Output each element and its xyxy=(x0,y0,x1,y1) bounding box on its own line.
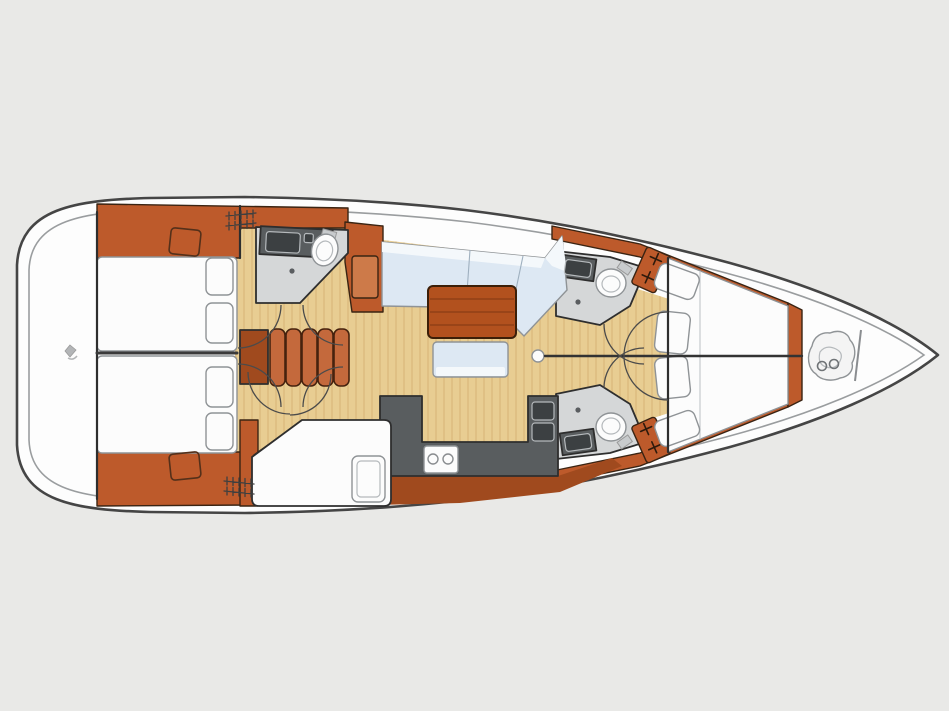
bench-front-strip xyxy=(436,367,505,376)
pillow xyxy=(206,258,233,295)
mast-post xyxy=(532,350,544,362)
pillow xyxy=(654,310,691,354)
drain-dot xyxy=(575,299,580,304)
galley-sink-bowl xyxy=(532,423,554,441)
stair-tread xyxy=(302,329,317,386)
forward-bottom-head-sink xyxy=(564,433,592,451)
pillow xyxy=(206,303,233,343)
salon-table xyxy=(428,286,516,338)
galley-sink-bowl xyxy=(532,402,554,420)
salon-cabinet-shelf xyxy=(352,256,378,298)
drain-dot xyxy=(289,268,294,273)
forward-top-head-sink xyxy=(564,259,592,277)
pillow xyxy=(206,413,233,450)
pillow xyxy=(206,367,233,407)
stair-tread xyxy=(334,329,349,386)
stair-tread xyxy=(270,329,285,386)
aft-head-sink xyxy=(265,231,300,253)
aft-head-faucet xyxy=(304,233,313,242)
pillow xyxy=(654,355,691,399)
yacht-floor-plan xyxy=(0,0,949,711)
floor-plan-page xyxy=(0,0,949,711)
companionway-base xyxy=(240,330,268,384)
stair-tread xyxy=(286,329,301,386)
companionway-stairs xyxy=(270,329,349,386)
cabinetry-light-details xyxy=(352,256,378,298)
aft-bottom-cabinet-band xyxy=(97,452,252,506)
drain-dot xyxy=(575,407,580,412)
anchor-locker-icon xyxy=(809,331,855,380)
